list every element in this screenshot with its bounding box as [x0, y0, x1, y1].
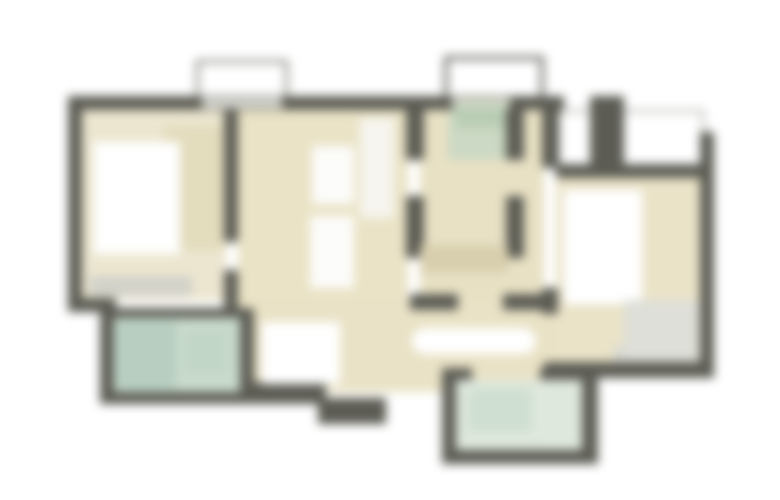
- wc-right-wall-mid: [506, 196, 524, 258]
- bedroom-divider-wall-lower: [224, 270, 238, 312]
- bath-bottom-top-stub: [442, 368, 472, 380]
- fixture-bath-bottom: [468, 388, 532, 432]
- sink-bath-left: [184, 330, 228, 374]
- entry-step-wall: [318, 398, 386, 424]
- corridor-right-pillar: [542, 96, 558, 168]
- cabinet-top-living: [360, 118, 394, 218]
- bedroom-divider-wall-upper: [224, 108, 238, 242]
- dresser-left-bedroom: [90, 276, 192, 296]
- living-right-wall-upper: [406, 108, 424, 160]
- page-background: [0, 0, 780, 500]
- left-wall: [68, 96, 82, 312]
- window-top-left: [202, 98, 282, 108]
- bath-left-left-wall: [100, 310, 114, 404]
- corridor-rug: [420, 245, 508, 273]
- hall-table: [412, 328, 536, 354]
- rug-bedroom-right: [624, 300, 700, 358]
- bath-bottom-bottom-wall: [442, 450, 598, 464]
- top-wall-right-pillar: [590, 96, 624, 170]
- tub-bath-left: [118, 322, 176, 390]
- shelf-living-upper: [312, 146, 354, 204]
- kitchen-block: [262, 322, 340, 384]
- balcony-right-outline: [558, 110, 704, 166]
- living-right-wall-stub: [410, 294, 458, 310]
- shelf-living-lower: [310, 216, 354, 288]
- bedroom-right-top-wall: [556, 164, 714, 178]
- hall-bottom-wall: [240, 382, 326, 400]
- bed-right: [564, 190, 642, 304]
- corridor-right-low: [542, 288, 558, 314]
- right-wall: [700, 132, 714, 378]
- bath-bottom-top-wall: [540, 368, 598, 380]
- floorplan: [0, 0, 780, 500]
- bed-left: [94, 142, 180, 254]
- balcony-top-center-outline: [444, 56, 544, 100]
- wc-fixture: [456, 106, 506, 128]
